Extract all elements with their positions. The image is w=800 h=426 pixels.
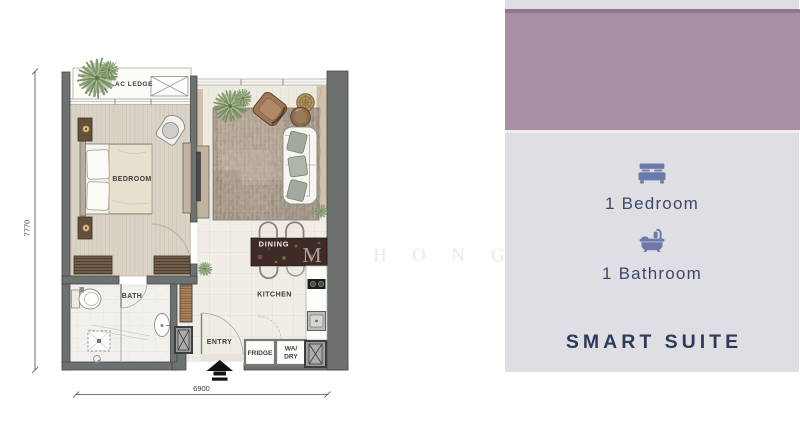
svg-text:KITCHEN: KITCHEN	[257, 290, 292, 299]
svg-text:DINING: DINING	[259, 240, 290, 249]
svg-text:AC LEDGE: AC LEDGE	[115, 81, 153, 88]
svg-text:BATH: BATH	[122, 293, 143, 300]
svg-text:WA/: WA/	[285, 346, 298, 353]
svg-text:O: O	[412, 245, 426, 266]
svg-text:M: M	[302, 243, 321, 267]
svg-text:7770: 7770	[23, 220, 32, 237]
svg-text:H: H	[373, 245, 387, 266]
svg-text:G: G	[491, 245, 505, 266]
svg-text:BEDROOM: BEDROOM	[112, 176, 151, 183]
svg-text:FRIDGE: FRIDGE	[248, 350, 274, 357]
svg-text:DRY: DRY	[284, 354, 298, 361]
svg-text:N: N	[451, 245, 465, 266]
svg-text:ENTRY: ENTRY	[207, 339, 232, 346]
svg-text:6900: 6900	[193, 384, 210, 393]
